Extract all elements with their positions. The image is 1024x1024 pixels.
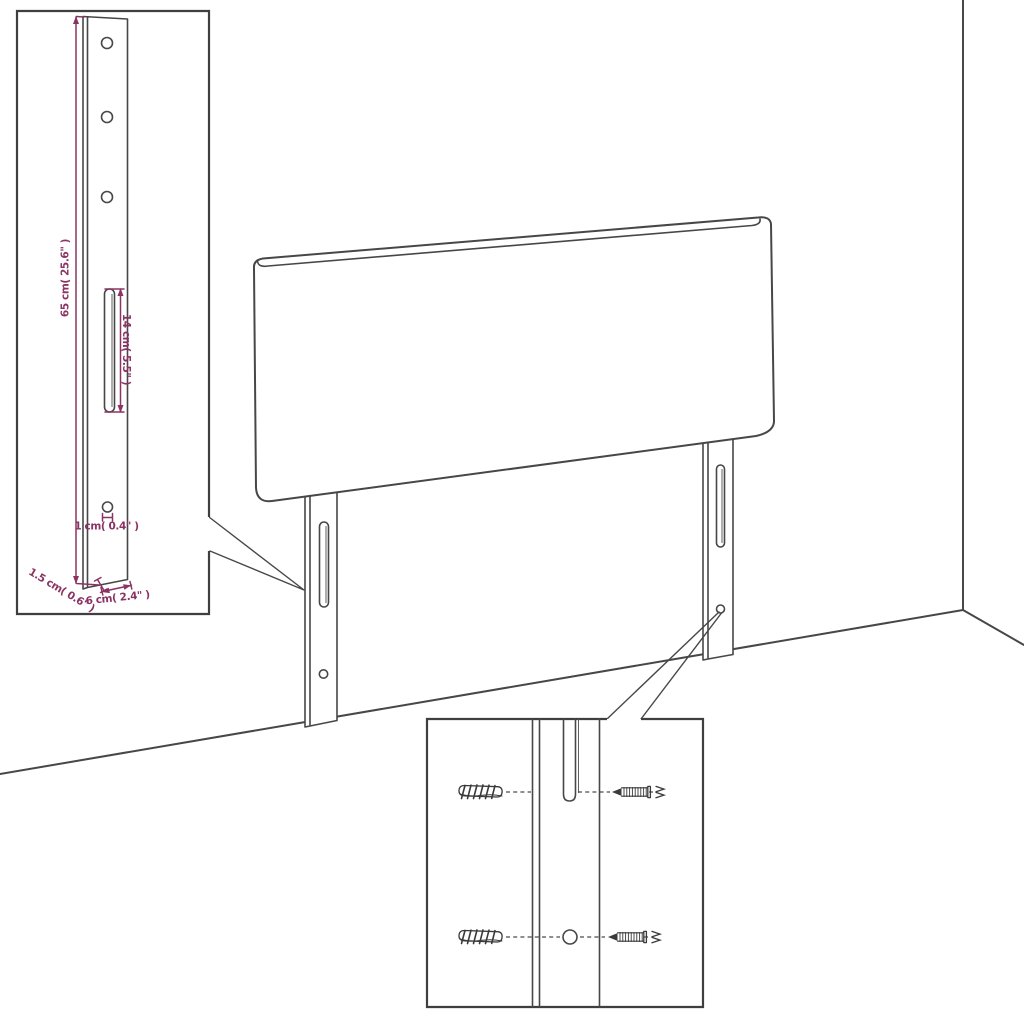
headboard-left-leg <box>305 483 337 727</box>
leg-detail-inset: 65 cm( 25.6" ) 14 cm( 5.5" ) 1 cm( 0.4" … <box>17 11 209 615</box>
mounting-detail-inset <box>427 719 703 1007</box>
dimension-height-label: 65 cm( 25.6" ) <box>60 239 72 317</box>
callout-lines-left-inset <box>209 517 304 590</box>
headboard-panel <box>254 217 774 501</box>
headboard-right-leg <box>703 432 733 660</box>
dimension-slot-label: 14 cm( 5.5" ) <box>120 314 132 385</box>
dimension-hole-label: 1 cm( 0.4" ) <box>74 521 138 533</box>
floor-line-right <box>963 610 1024 645</box>
product-diagram-canvas: 65 cm( 25.6" ) 14 cm( 5.5" ) 1 cm( 0.4" … <box>0 0 1024 1024</box>
headboard-assembly-diagram: 65 cm( 25.6" ) 14 cm( 5.5" ) 1 cm( 0.4" … <box>0 0 1024 1024</box>
